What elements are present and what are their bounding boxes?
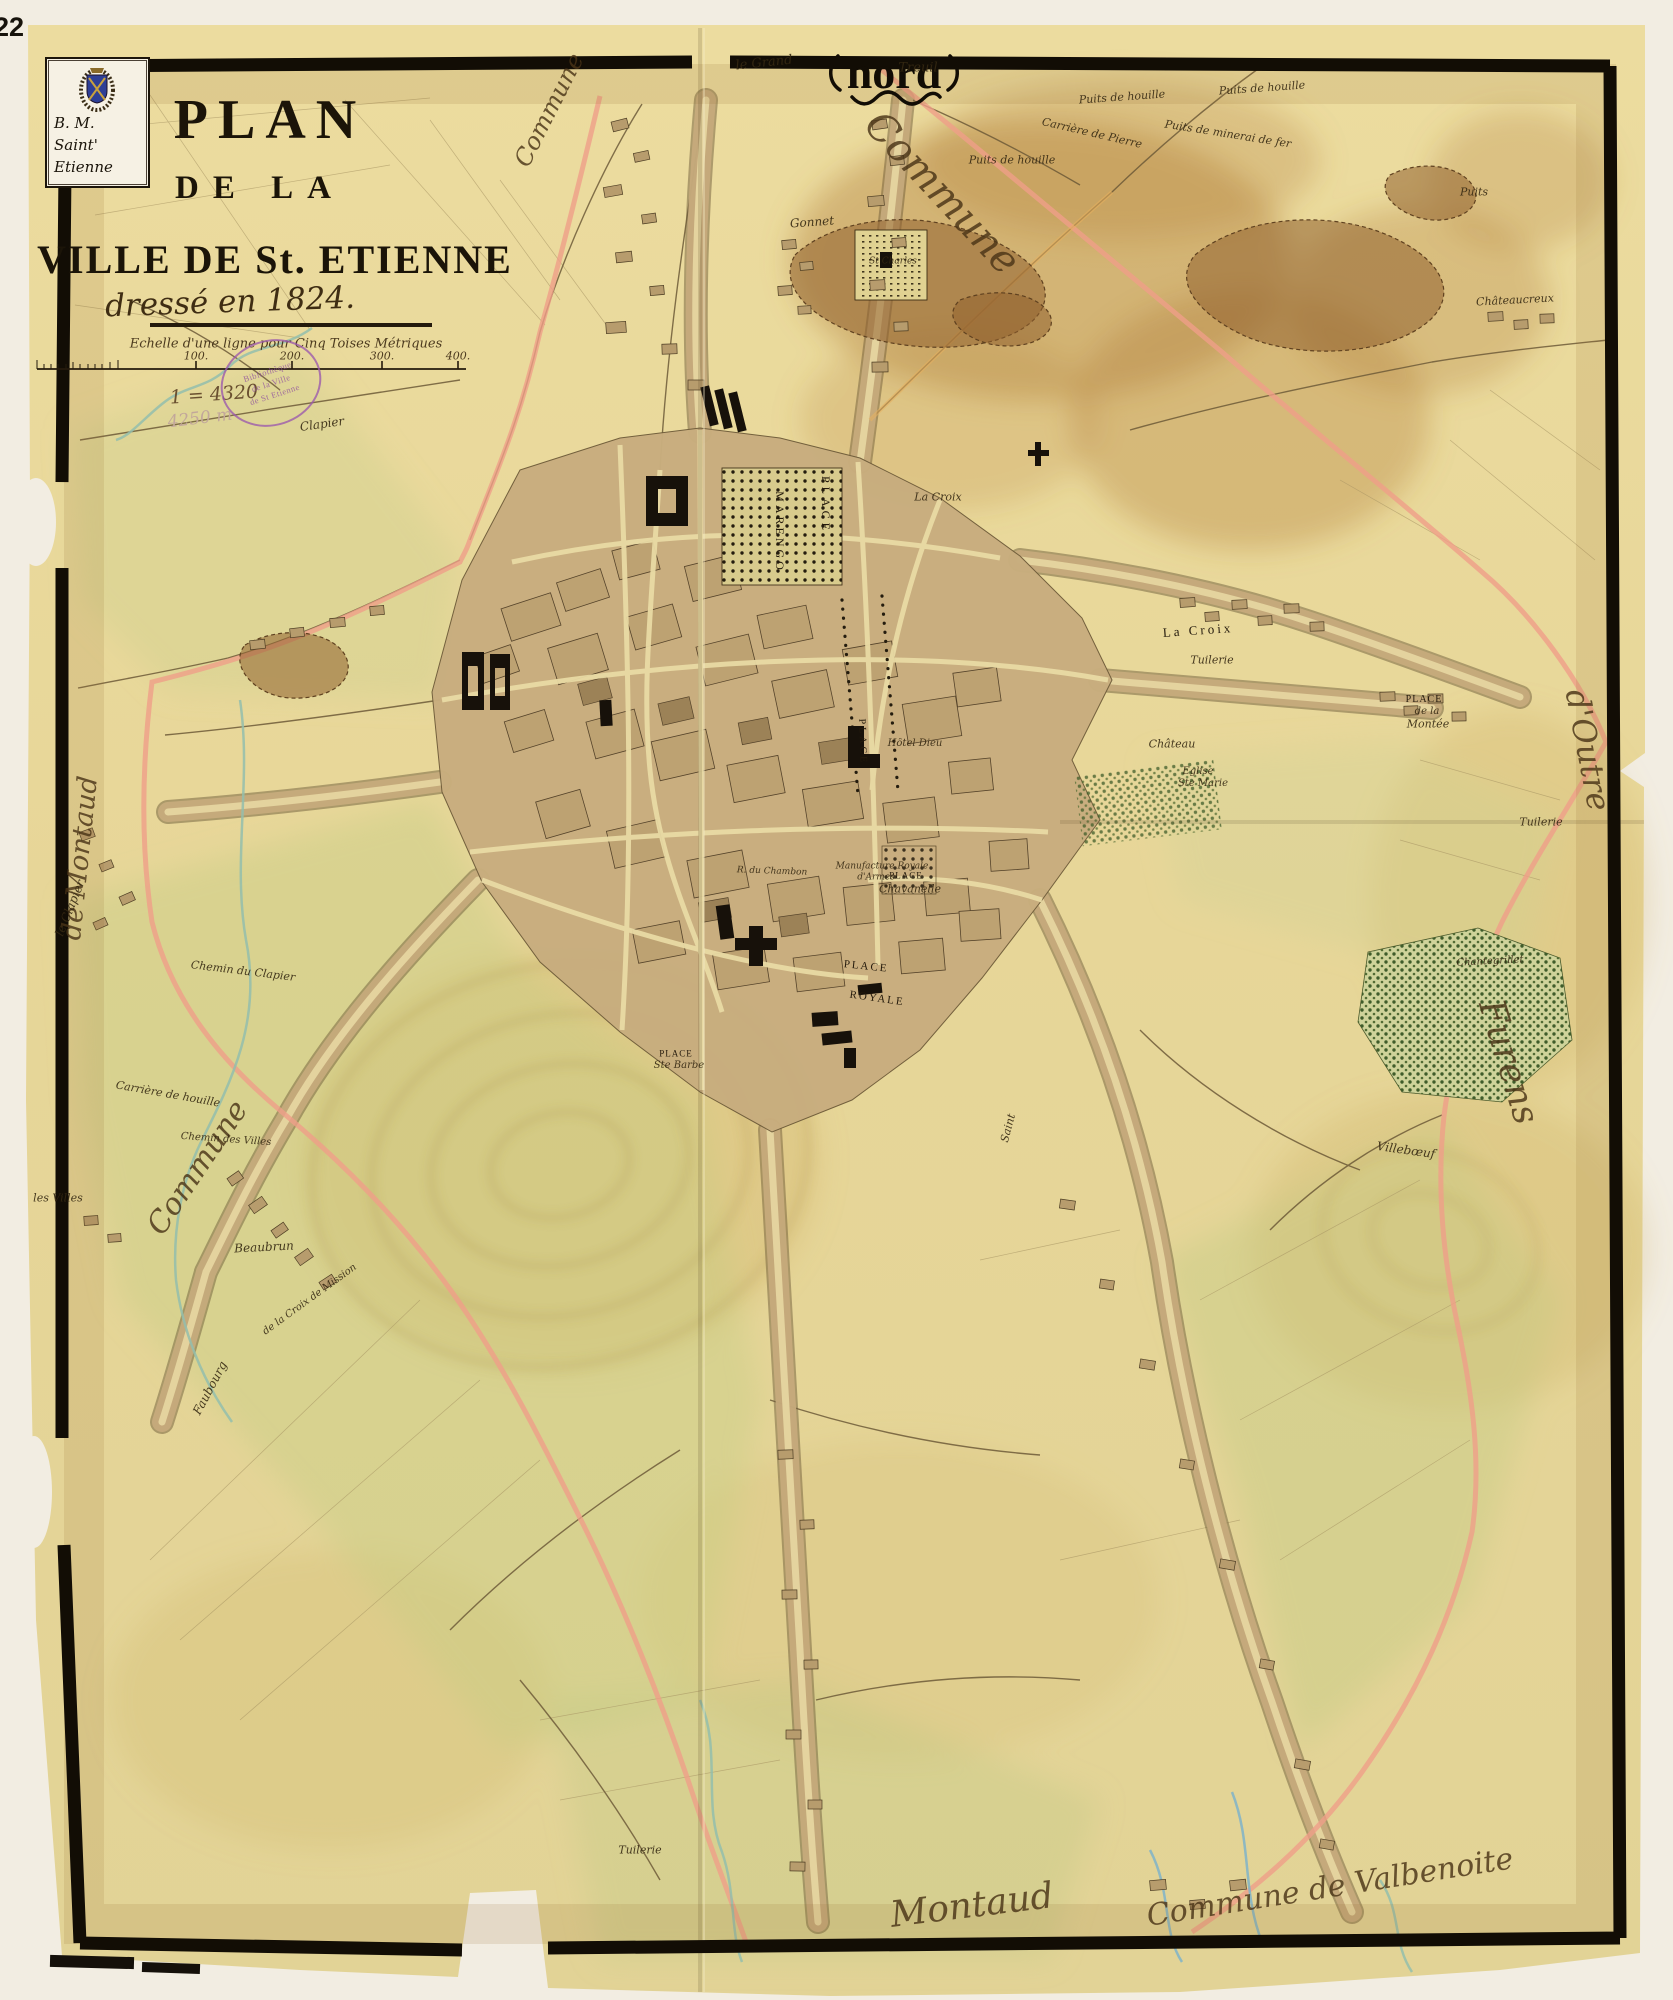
title-rule bbox=[150, 323, 432, 327]
bookplate-line3: Etienne bbox=[54, 158, 113, 176]
bookplate-line2: Saint' bbox=[54, 136, 98, 154]
page-number: 22 bbox=[0, 12, 24, 43]
bookplate-line1: B. M. bbox=[54, 114, 95, 132]
map-title-line2: DE LA bbox=[110, 170, 410, 207]
scanned-map-page: nordCommuneCommunele GrandTreuilPuits de… bbox=[0, 0, 1673, 2000]
map-title-line3: VILLE DE St. ETIENNE bbox=[25, 236, 525, 283]
bookplate: B. M. Saint' Etienne bbox=[45, 57, 150, 188]
map-title-line1: PLAN bbox=[120, 88, 420, 152]
coat-of-arms-icon bbox=[75, 62, 119, 114]
